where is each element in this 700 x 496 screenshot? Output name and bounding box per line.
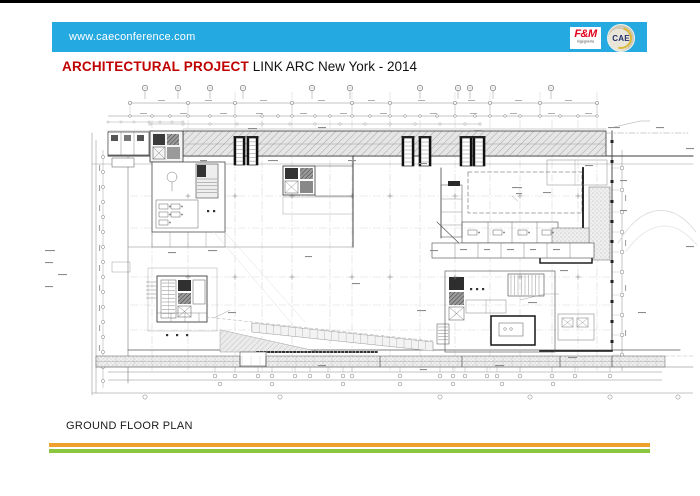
divider-stripe-green — [49, 449, 650, 453]
divider-stripe-orange — [49, 443, 650, 447]
bottom-strip — [96, 352, 693, 367]
ramp-wedge — [206, 317, 433, 352]
plan-walls-and-rooms — [92, 129, 697, 395]
slide: www.caeconference.com F&M ingegneria CAE… — [0, 0, 700, 496]
left-office-rooms — [152, 162, 225, 247]
site-curves — [214, 210, 697, 325]
plan-caption: GROUND FLOOR PLAN — [66, 420, 193, 432]
left-service-rooms — [108, 132, 149, 272]
left-stair-core — [150, 131, 183, 162]
left-center-core — [148, 268, 217, 331]
